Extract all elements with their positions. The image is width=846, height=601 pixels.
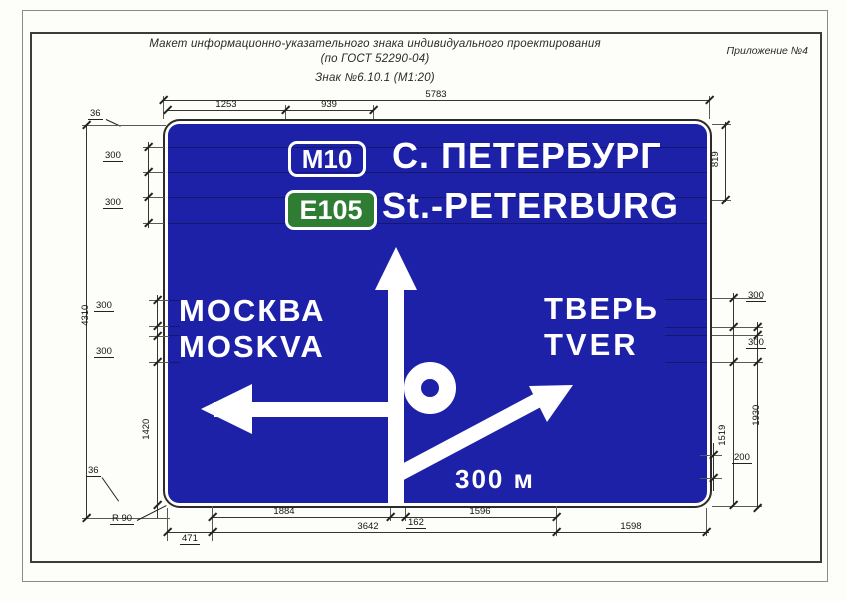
extension-line	[149, 362, 169, 363]
dim-right-row1: 300	[746, 291, 766, 302]
extension-line	[167, 508, 168, 541]
extension-line	[82, 125, 166, 126]
dim-header-height: 819	[711, 139, 721, 179]
extension-line	[149, 300, 169, 301]
sign-field: M10 С. ПЕТЕРБУРГ E105 St.-PETERBURG МОСК…	[168, 124, 707, 503]
extension-line	[149, 336, 169, 337]
dim-left-offset: 1253	[167, 100, 285, 110]
left-destination-latin: MOSKVA	[179, 331, 325, 362]
dim-right-outer: 1930	[752, 395, 762, 435]
distance-label: 300 м	[455, 466, 535, 492]
drawing-subtitle-gost: (по ГОСТ 52290-04)	[80, 53, 670, 65]
destination-latin: St.-PETERBURG	[382, 188, 679, 224]
extension-line	[712, 506, 762, 507]
extension-line	[212, 506, 213, 541]
dim-border-top: 36	[88, 109, 103, 120]
euro-route-badge-e105: E105	[285, 190, 377, 230]
dimension-line	[157, 295, 158, 518]
right-destination-latin: TVER	[544, 329, 639, 360]
dim-arrow-tip-offset: 471	[180, 534, 200, 545]
drawing-sheet: Макет информационно-указательного знака …	[0, 0, 846, 601]
dim-distance-text-height: 200	[732, 453, 752, 464]
dim-row1-height: 300	[103, 151, 123, 162]
dimension-line	[148, 142, 149, 228]
left-destination: МОСКВА	[179, 295, 325, 326]
dim-right-row2: 300	[746, 338, 766, 349]
dim-arrows-total: 3642	[346, 522, 390, 532]
dim-left-row1: 300	[94, 301, 114, 312]
dim-corner-radius: R 90	[110, 514, 134, 525]
destination-primary: С. ПЕТЕРБУРГ	[392, 138, 662, 174]
extension-line	[712, 124, 731, 125]
dim-row2-height: 300	[103, 198, 123, 209]
dimension-line	[713, 443, 714, 491]
annex-note: Приложение №4	[690, 45, 808, 57]
dim-total-width: 5783	[163, 90, 709, 100]
dim-right-inner: 1519	[718, 415, 728, 455]
dim-left-row2: 300	[94, 347, 114, 358]
dim-left-arrow-length: 1884	[264, 507, 304, 517]
dim-stem-width: 162	[406, 518, 426, 529]
dim-border-bottom: 36	[86, 466, 101, 477]
drawing-sign-number: Знак №6.10.1 (М1:20)	[80, 72, 670, 84]
dim-badge-width: 939	[285, 100, 373, 110]
route-badge-m10: M10	[288, 141, 366, 177]
dim-total-height: 4310	[81, 295, 91, 335]
dim-right-segment: 1598	[609, 522, 653, 532]
dim-diag-arrow-length: 1596	[460, 507, 500, 517]
right-destination: ТВЕРЬ	[544, 293, 659, 324]
dim-left-lower: 1420	[142, 409, 152, 449]
sign-board: M10 С. ПЕТЕРБУРГ E105 St.-PETERBURG МОСК…	[163, 119, 712, 508]
dimension-line	[725, 122, 726, 202]
drawing-title: Макет информационно-указательного знака …	[80, 38, 670, 50]
extension-line	[149, 326, 169, 327]
